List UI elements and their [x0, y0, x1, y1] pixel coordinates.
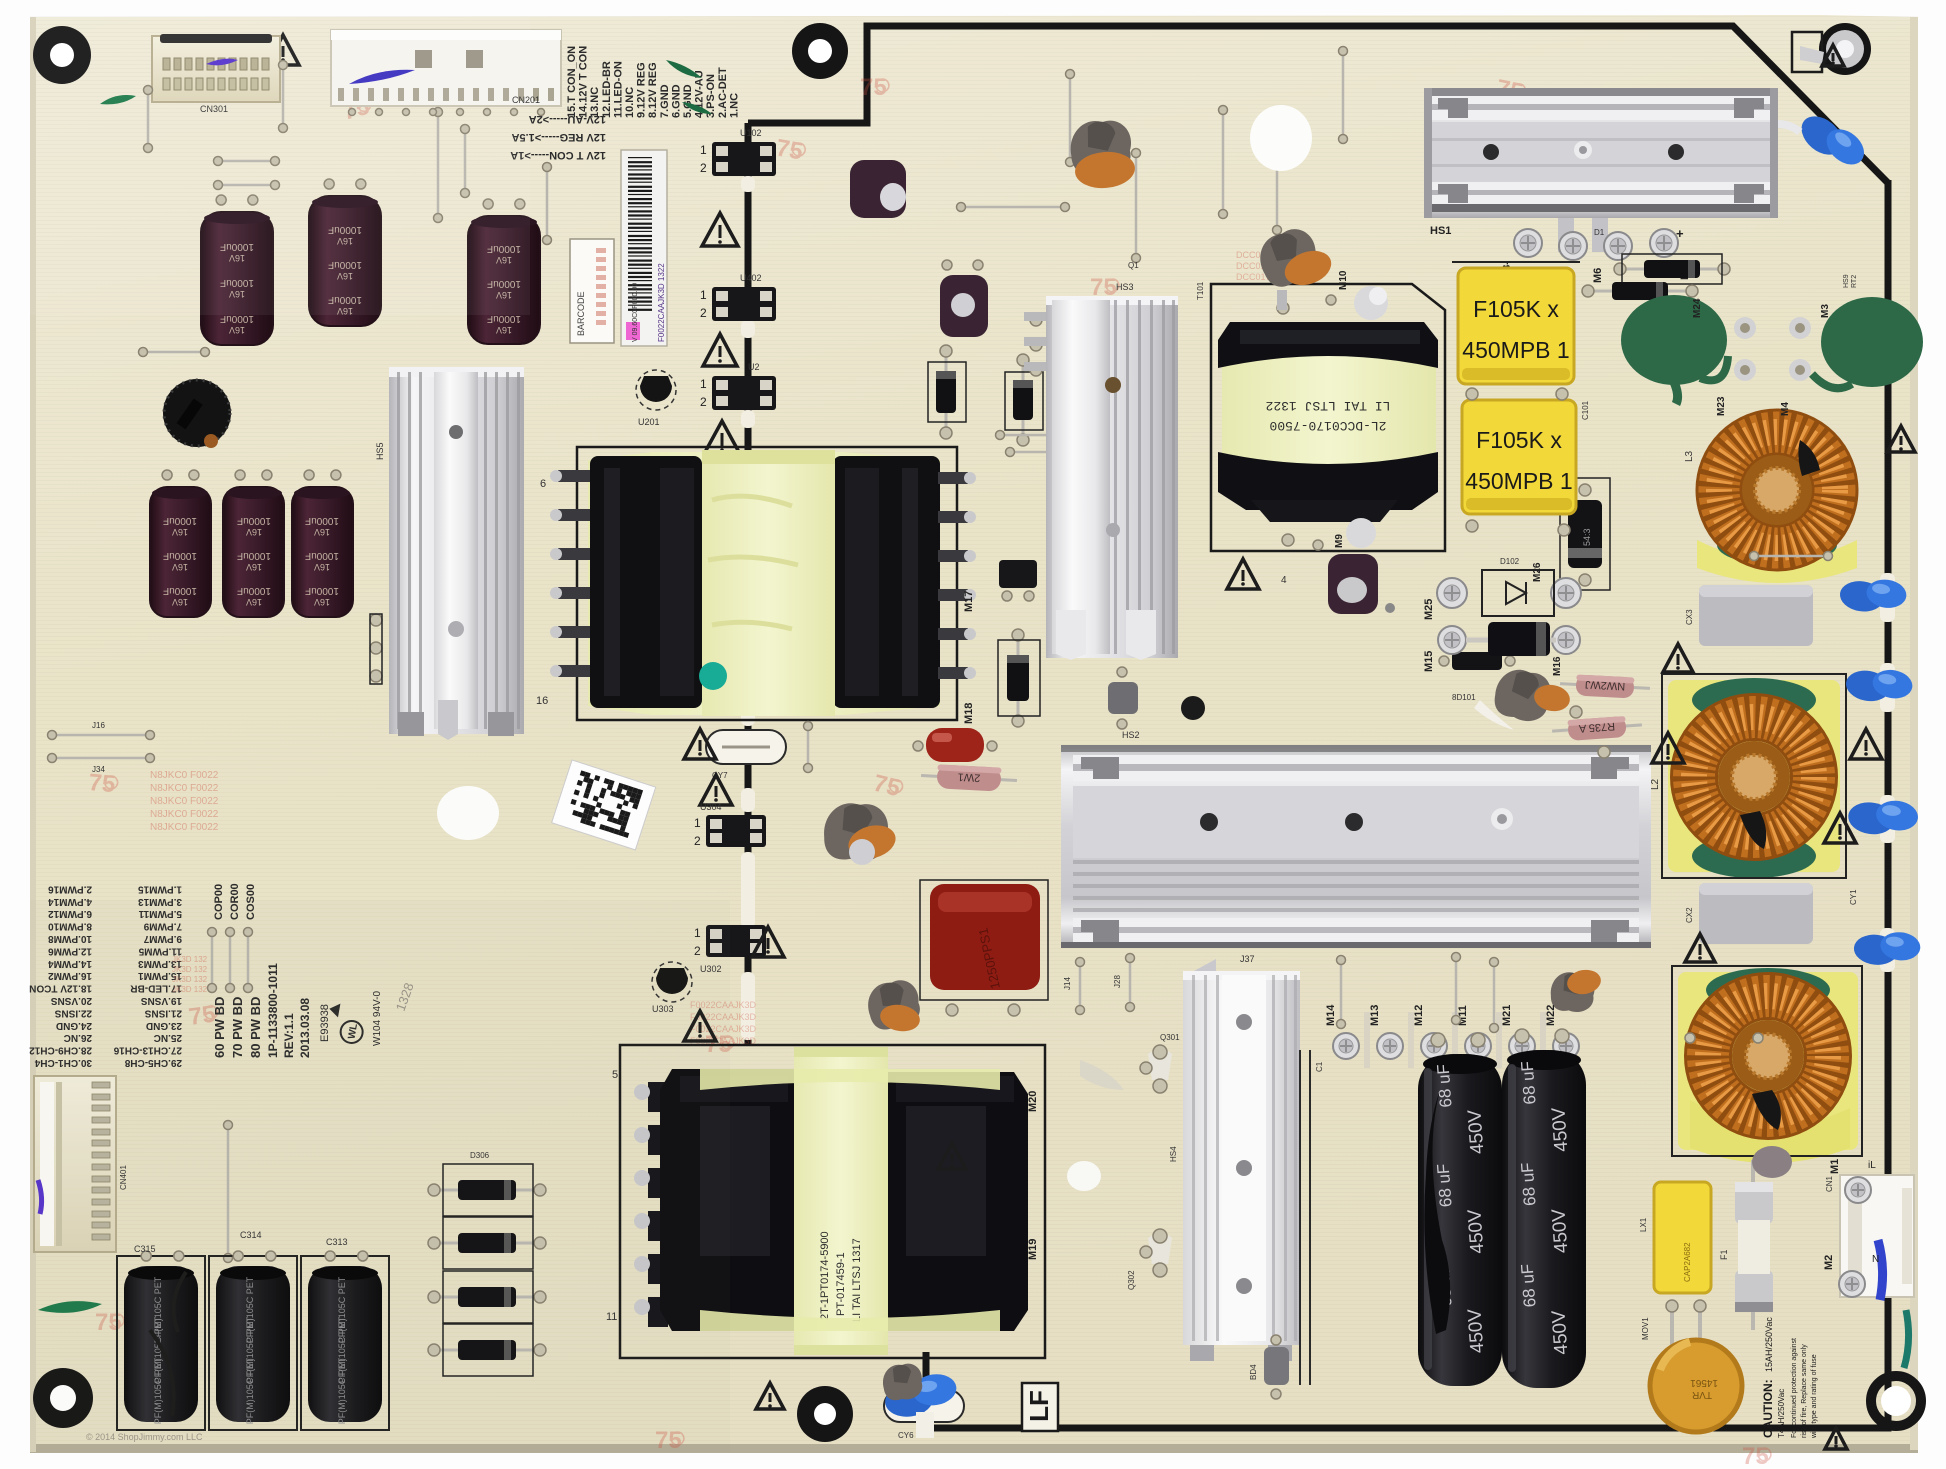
svg-text:16V: 16V [246, 597, 262, 607]
svg-text:N8JKC0 F0022: N8JKC0 F0022 [150, 809, 219, 820]
svg-text:NW2WJ: NW2WJ [1585, 678, 1626, 692]
svg-text:risk of fire, Replace same onl: risk of fire, Replace same only [1801, 1344, 1808, 1438]
svg-text:Q302: Q302 [1127, 1270, 1136, 1290]
svg-text:CN1: CN1 [1825, 1175, 1834, 1192]
svg-text:U304: U304 [700, 802, 722, 812]
svg-text:N: N [1872, 1254, 1879, 1265]
svg-text:2.PWM16: 2.PWM16 [48, 883, 92, 894]
svg-text:Q1: Q1 [1128, 261, 1139, 270]
svg-text:F105K x: F105K x [1473, 296, 1559, 322]
svg-text:1000uF: 1000uF [163, 550, 197, 561]
svg-text:Q301: Q301 [1160, 1033, 1180, 1042]
svg-text:L2: L2 [1650, 778, 1661, 790]
svg-text:D1: D1 [1594, 228, 1605, 237]
svg-text:450V: 450V [1548, 1309, 1572, 1355]
svg-text:450V: 450V [1548, 1106, 1572, 1152]
svg-text:2: 2 [694, 834, 701, 848]
svg-text:M26: M26 [1532, 562, 1543, 582]
svg-text:1000uF: 1000uF [237, 515, 271, 526]
svg-text:For continued protection again: For continued protection against [1791, 1338, 1798, 1438]
svg-text:2: 2 [700, 395, 707, 409]
svg-text:N8JKC0 F0022: N8JKC0 F0022 [150, 770, 219, 781]
svg-text:1: 1 [700, 377, 707, 391]
svg-text:75: 75 [860, 74, 887, 101]
svg-text:BARCODE: BARCODE [576, 291, 586, 336]
svg-text:M3: M3 [1820, 304, 1831, 318]
svg-text:1.PWM15: 1.PWM15 [138, 883, 182, 894]
svg-text:LI TAI LTSJ 1322: LI TAI LTSJ 1322 [1266, 398, 1391, 413]
svg-text:HS3: HS3 [1116, 282, 1134, 292]
svg-text:M21: M21 [1501, 1005, 1513, 1026]
svg-text:HS9: HS9 [1843, 274, 1850, 288]
svg-text:J14: J14 [1063, 977, 1072, 990]
svg-text:5.GND: 5.GND [682, 84, 694, 118]
svg-text:1000uF: 1000uF [163, 515, 197, 526]
svg-text:16V: 16V [314, 597, 330, 607]
svg-text:68 uF: 68 uF [1434, 1163, 1456, 1208]
svg-text:450V: 450V [1464, 1308, 1488, 1354]
svg-text:16V: 16V [172, 562, 188, 572]
svg-text:1: 1 [700, 288, 707, 302]
svg-text:J28: J28 [1113, 975, 1122, 988]
svg-text:CY1: CY1 [1849, 889, 1858, 905]
svg-text:M16: M16 [1552, 656, 1563, 676]
svg-text:16V: 16V [496, 325, 512, 335]
svg-text:6: 6 [540, 478, 546, 490]
svg-text:1000uF: 1000uF [237, 585, 271, 596]
svg-text:M19: M19 [1027, 1239, 1039, 1260]
svg-text:M6: M6 [1592, 268, 1604, 283]
svg-text:8D101: 8D101 [1452, 693, 1476, 702]
svg-text:U102: U102 [740, 128, 762, 138]
svg-text:HS4: HS4 [1169, 1146, 1178, 1162]
svg-text:CY6: CY6 [898, 1431, 914, 1440]
svg-text:U201: U201 [638, 417, 660, 427]
svg-text:TVR: TVR [1692, 1389, 1712, 1400]
svg-text:16V: 16V [314, 527, 330, 537]
svg-text:F1: F1 [1719, 1249, 1729, 1260]
svg-text:16V: 16V [246, 562, 262, 572]
svg-text:CAP2A682: CAP2A682 [1683, 1242, 1692, 1282]
svg-text:1000uF: 1000uF [305, 585, 339, 596]
svg-text:12.LED-BR: 12.LED-BR [601, 61, 613, 118]
svg-text:M23: M23 [1716, 396, 1727, 416]
svg-text:N8JKC0 F0022: N8JKC0 F0022 [150, 796, 219, 807]
svg-text:N8JKC0 F0022: N8JKC0 F0022 [150, 822, 219, 833]
svg-text:M14: M14 [1325, 1004, 1337, 1026]
svg-text:J37: J37 [1240, 954, 1255, 964]
svg-text:1000uF: 1000uF [305, 515, 339, 526]
svg-text:450V: 450V [1548, 1208, 1572, 1254]
svg-text:+: + [1676, 226, 1684, 241]
svg-text:PT-017459-1: PT-017459-1 [835, 1252, 847, 1316]
svg-text:M24: M24 [1692, 298, 1703, 318]
svg-text:450MPB 1: 450MPB 1 [1462, 337, 1569, 363]
svg-text:2.AC-DET: 2.AC-DET [717, 67, 729, 118]
svg-text:54:3: 54:3 [1582, 528, 1592, 546]
svg-text:2T-1PT0174-5900: 2T-1PT0174-5900 [819, 1231, 831, 1320]
svg-text:M17: M17 [963, 591, 975, 612]
svg-text:8.12V REG: 8.12V REG [647, 62, 659, 118]
svg-text:C101: C101 [1581, 400, 1590, 420]
svg-text:2W1: 2W1 [957, 770, 980, 783]
svg-text:16V: 16V [229, 325, 245, 335]
svg-text:J34: J34 [92, 765, 105, 774]
svg-text:LF: LF [1024, 1390, 1054, 1422]
svg-text:14561: 14561 [1690, 1377, 1718, 1388]
svg-text:14.12V T CON: 14.12V T CON [578, 46, 590, 118]
svg-text:M20: M20 [1027, 1091, 1039, 1112]
svg-text:6.GND: 6.GND [670, 84, 682, 118]
svg-text:1: 1 [694, 816, 701, 830]
svg-text:R735 A: R735 A [1578, 720, 1615, 735]
svg-text:75: 75 [774, 134, 805, 165]
svg-text:7.GND: 7.GND [659, 84, 671, 118]
svg-text:N8JKC0 F0022: N8JKC0 F0022 [150, 783, 219, 794]
svg-text:M1: M1 [1829, 1159, 1841, 1174]
svg-text:RT2: RT2 [1851, 275, 1858, 288]
svg-text:16V: 16V [314, 562, 330, 572]
svg-text:HS1: HS1 [1430, 225, 1451, 237]
svg-text:16V: 16V [172, 597, 188, 607]
svg-text:CAUTION:: CAUTION: [1761, 1379, 1775, 1438]
svg-text:1000uF: 1000uF [163, 585, 197, 596]
svg-text:M4: M4 [1780, 402, 1791, 416]
svg-text:75: 75 [1742, 1443, 1769, 1469]
svg-text:with type and rating of fuse: with type and rating of fuse [1811, 1354, 1818, 1439]
svg-text:HS2: HS2 [1122, 730, 1140, 740]
svg-text:BD4: BD4 [1249, 1364, 1258, 1380]
svg-text:1: 1 [700, 143, 707, 157]
svg-text:LI TAI LTSJ 1317: LI TAI LTSJ 1317 [851, 1238, 863, 1322]
svg-text:15AH/250Vac: 15AH/250Vac [1764, 1317, 1774, 1372]
svg-text:M12: M12 [1413, 1005, 1425, 1026]
svg-text:M13: M13 [1369, 1005, 1381, 1026]
svg-text:M10: M10 [1338, 270, 1349, 290]
svg-text:M18: M18 [963, 703, 975, 724]
svg-text:M22: M22 [1545, 1005, 1557, 1026]
svg-text:16V: 16V [172, 527, 188, 537]
svg-text:U402: U402 [740, 273, 762, 283]
svg-text:M25: M25 [1423, 599, 1435, 620]
svg-text:M15: M15 [1423, 651, 1435, 672]
svg-text:M9: M9 [1334, 534, 1345, 548]
svg-text:HS5: HS5 [375, 442, 385, 460]
svg-text:LX1: LX1 [1639, 1217, 1648, 1232]
svg-text:2L-DCC0170-7500: 2L-DCC0170-7500 [1269, 418, 1386, 433]
svg-text:CX2: CX2 [1685, 907, 1694, 923]
svg-text:T4AH/250Vac: T4AH/250Vac [1777, 1389, 1786, 1438]
svg-text:L3: L3 [1684, 450, 1695, 462]
svg-text:F105K x: F105K x [1476, 427, 1562, 453]
svg-text:450MPB 1: 450MPB 1 [1465, 468, 1572, 494]
svg-text:10.NC: 10.NC [624, 87, 636, 118]
svg-text:68 uF: 68 uF [1518, 1162, 1540, 1207]
svg-text:2: 2 [700, 306, 707, 320]
svg-text:4: 4 [1281, 575, 1287, 586]
svg-text:U2: U2 [748, 362, 760, 372]
svg-text:450V: 450V [1464, 1109, 1488, 1155]
svg-text:68 uF: 68 uF [1518, 1263, 1540, 1308]
svg-text:450V: 450V [1464, 1208, 1488, 1254]
svg-text:2: 2 [700, 161, 707, 175]
svg-text:1000uF: 1000uF [305, 550, 339, 561]
svg-text:T101: T101 [1196, 281, 1205, 300]
svg-text:J16: J16 [92, 721, 105, 730]
svg-text:16V: 16V [246, 527, 262, 537]
svg-text:68 uF: 68 uF [1518, 1060, 1540, 1105]
svg-text:C1: C1 [1315, 1061, 1324, 1072]
svg-text:iL: iL [1868, 1160, 1876, 1171]
svg-text:9.12V REG: 9.12V REG [636, 62, 648, 118]
svg-text:M2: M2 [1823, 1255, 1835, 1270]
svg-text:11.LED-ON: 11.LED-ON [612, 61, 624, 118]
svg-text:15.T CON_ON: 15.T CON_ON [566, 46, 578, 118]
svg-text:V 09.60C0P000.00: V 09.60C0P000.00 [632, 283, 639, 342]
svg-text:MOV1: MOV1 [1641, 1317, 1650, 1340]
svg-text:CX3: CX3 [1685, 609, 1694, 625]
svg-text:D102: D102 [1500, 557, 1520, 566]
svg-text:1.NC: 1.NC [728, 93, 740, 118]
svg-text:F0022CAAJK3D 1322: F0022CAAJK3D 1322 [657, 263, 666, 342]
svg-text:16: 16 [536, 695, 548, 707]
svg-text:1000uF: 1000uF [237, 550, 271, 561]
